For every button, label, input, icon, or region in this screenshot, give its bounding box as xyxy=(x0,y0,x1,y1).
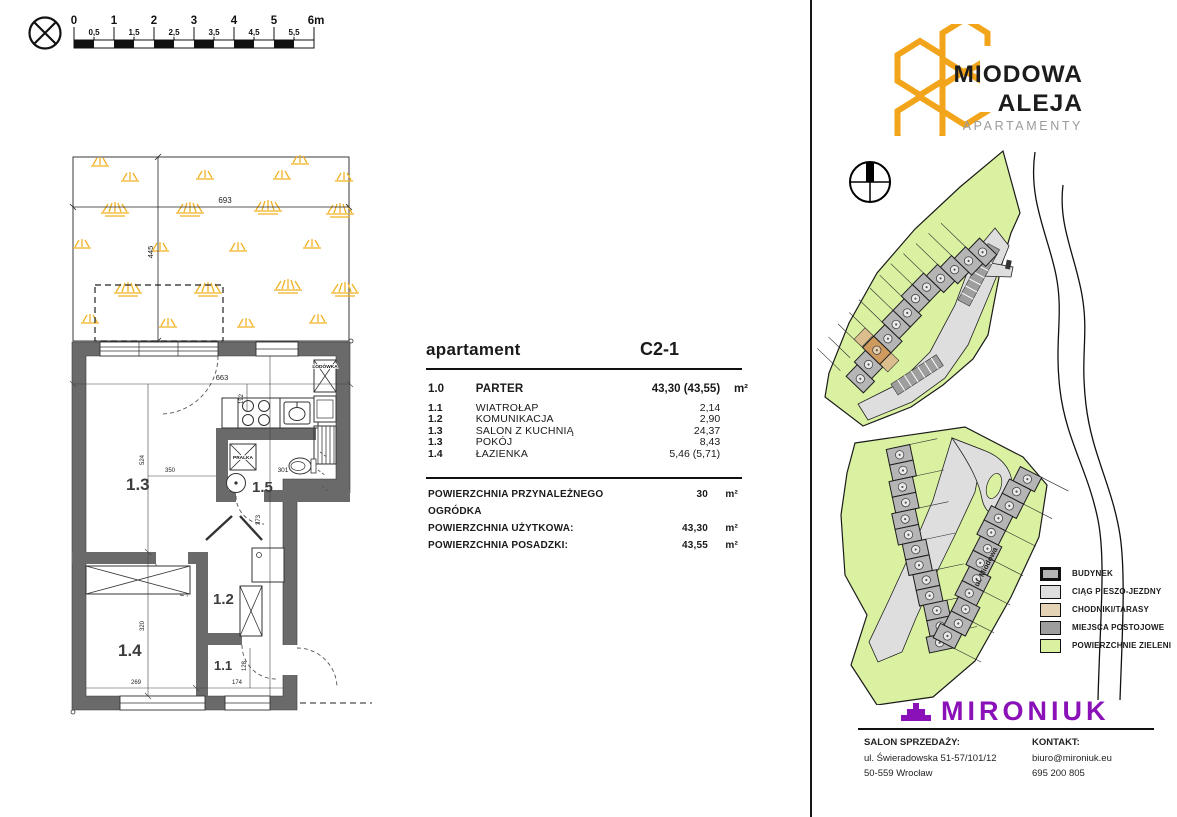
table-row: 1.4 ŁAZIENKA 5,46 (5,71) xyxy=(428,449,748,461)
site-legend: BUDYNEK CIĄG PIESZO-JEZDNY CHODNIKI/TARA… xyxy=(1040,566,1171,653)
table-rule-bottom xyxy=(426,477,742,479)
brand-line2: ALEJA xyxy=(998,90,1083,117)
summary-rows: POWIERZCHNIA PRZYNALEŻNEGO OGRÓDKA 30 m²… xyxy=(428,486,748,554)
lower-parcel: ul. Miodowa xyxy=(841,427,1068,705)
scale-bar: 0 1 2 3 4 5 6m 0,5 1,5 2,5 3,5 4,5 5,5 xyxy=(58,10,338,60)
sales-office-block: SALON SPRZEDAŻY: ul. Świeradowska 51-57/… xyxy=(864,735,997,782)
svg-text:3,5: 3,5 xyxy=(208,28,220,37)
row-unit xyxy=(720,403,748,415)
floor-plan: 693 445 xyxy=(55,140,375,726)
summary-value: 30 xyxy=(656,486,708,520)
row-value: 8,43 xyxy=(643,437,721,449)
row-unit xyxy=(720,414,748,426)
summary-row: POWIERZCHNIA UŻYTKOWA: 43,30 m² xyxy=(428,520,748,537)
table-title: apartament xyxy=(426,340,521,360)
panel-divider xyxy=(810,0,812,817)
svg-text:2: 2 xyxy=(151,15,157,27)
dim-living-height: 524 xyxy=(140,454,146,465)
summary-label: POWIERZCHNIA PRZYNALEŻNEGO OGRÓDKA xyxy=(428,486,656,520)
room-living: 1.3 xyxy=(126,475,150,494)
legend-item: CHODNIKI/TARASY xyxy=(1040,602,1171,617)
dim-garden-width: 693 xyxy=(218,196,232,205)
svg-text:3: 3 xyxy=(191,15,197,27)
legend-item: CIĄG PIESZO-JEZDNY xyxy=(1040,584,1171,599)
upper-parcel xyxy=(815,151,1020,426)
svg-text:2,5: 2,5 xyxy=(168,28,180,37)
row-value: 2,90 xyxy=(643,414,721,426)
dim-kitchen: 192 xyxy=(239,393,245,404)
legend-item: BUDYNEK xyxy=(1040,566,1171,581)
north-indicator-icon xyxy=(850,162,890,202)
washer-label: PRALKA xyxy=(233,455,254,461)
brand-line3: APARTAMENTY xyxy=(963,119,1083,133)
summary-unit: m² xyxy=(708,520,738,537)
dim-bedroom-width: 269 xyxy=(131,680,142,686)
apartment-code: C2-1 xyxy=(640,339,679,360)
room-bath: 1.5 xyxy=(252,479,273,496)
legend-label: CHODNIKI/TARASY xyxy=(1072,605,1149,614)
row-value: 43,30 (43,55) xyxy=(643,384,721,396)
dim-living-width: 350 xyxy=(165,468,176,474)
svg-text:6m: 6m xyxy=(308,15,325,27)
svg-text:1: 1 xyxy=(111,15,118,27)
dim-bath-width: 301 xyxy=(278,467,289,474)
svg-text:4: 4 xyxy=(231,15,238,27)
row-name: POKÓJ xyxy=(476,437,643,449)
legend-item: MIEJSCA POSTOJOWE xyxy=(1040,620,1171,635)
row-code: 1.2 xyxy=(428,414,476,426)
summary-row: POWIERZCHNIA PRZYNALEŻNEGO OGRÓDKA 30 m² xyxy=(428,486,748,520)
contact-title: KONTAKT: xyxy=(1032,735,1112,751)
sales-address-line1: ul. Świeradowska 51-57/101/12 xyxy=(864,751,997,767)
mironiuk-icon xyxy=(898,699,934,723)
row-code: 1.3 xyxy=(428,437,476,449)
scale-bar-segments xyxy=(74,40,314,48)
row-code: 1.0 xyxy=(428,384,476,396)
sales-title: SALON SPRZEDAŻY: xyxy=(864,735,997,751)
scale-ticks xyxy=(74,27,314,40)
brand-logo: MIODOWA ALEJA APARTAMENTY xyxy=(868,24,1108,136)
svg-text:0,5: 0,5 xyxy=(88,28,100,37)
legend-swatch-postojowe xyxy=(1040,621,1061,635)
apartment-walls xyxy=(72,342,350,710)
legend-swatch-ciag xyxy=(1040,585,1061,599)
dim-hall-height: 373 xyxy=(256,514,262,525)
summary-unit: m² xyxy=(708,486,738,520)
dim-entry-height: 128 xyxy=(242,660,248,671)
row-unit xyxy=(720,426,748,438)
summary-value: 43,55 xyxy=(656,537,708,554)
contact-block: KONTAKT: biuro@mironiuk.eu 695 200 805 xyxy=(1032,735,1112,782)
contact-phone: 695 200 805 xyxy=(1032,766,1112,782)
svg-text:0: 0 xyxy=(71,15,77,27)
brochure-page: 0 1 2 3 4 5 6m 0,5 1,5 2,5 3,5 4,5 5,5 xyxy=(0,0,1177,817)
row-name: ŁAZIENKA xyxy=(476,449,643,461)
summary-unit: m² xyxy=(708,537,738,554)
room-entry: 1.1 xyxy=(214,658,232,673)
legend-swatch-budynek xyxy=(1040,567,1061,581)
dim-entry-width: 174 xyxy=(232,680,243,686)
dim-bedroom-height: 320 xyxy=(140,620,146,631)
row-unit xyxy=(720,449,748,461)
apartment-rows: 1.0 PARTER 43,30 (43,55) m² 1.1 WIATROŁA… xyxy=(428,384,748,460)
legend-label: BUDYNEK xyxy=(1072,569,1113,578)
legend-item: POWIERZCHNIE ZIELENI xyxy=(1040,638,1171,653)
brand-line1: MIODOWA xyxy=(954,61,1084,88)
row-value: 5,46 (5,71) xyxy=(643,449,721,461)
room-hall: 1.2 xyxy=(213,591,234,608)
room-bedroom: 1.4 xyxy=(118,641,142,660)
scale-major-labels: 0 1 2 3 4 5 6m xyxy=(71,15,325,27)
legend-swatch-chodniki xyxy=(1040,603,1061,617)
dim-garden-height: 445 xyxy=(146,246,155,259)
table-rule-top xyxy=(426,368,742,370)
summary-value: 43,30 xyxy=(656,520,708,537)
footer-rule xyxy=(858,728,1154,730)
contact-email: biuro@mironiuk.eu xyxy=(1032,751,1112,767)
hall-door-leaves xyxy=(206,516,262,540)
dim-interior-width: 663 xyxy=(216,373,229,382)
legend-label: POWIERZCHNIE ZIELENI xyxy=(1072,641,1171,650)
row-unit xyxy=(720,437,748,449)
summary-label: POWIERZCHNIA UŻYTKOWA: xyxy=(428,520,656,537)
table-row: 1.2 KOMUNIKACJA 2,90 xyxy=(428,414,748,426)
row-name: PARTER xyxy=(476,384,643,396)
svg-text:5,5: 5,5 xyxy=(288,28,300,37)
summary-label: POWIERZCHNIA POSADZKI: xyxy=(428,537,656,554)
table-row: 1.3 POKÓJ 8,43 xyxy=(428,437,748,449)
legend-swatch-zielen xyxy=(1040,639,1061,653)
sales-address-line2: 50-559 Wrocław xyxy=(864,766,997,782)
kitchen-tall-units: LODÓWKA xyxy=(312,360,338,464)
svg-text:1,5: 1,5 xyxy=(128,28,140,37)
svg-text:5: 5 xyxy=(271,15,278,27)
row-unit: m² xyxy=(720,384,748,396)
svg-text:4,5: 4,5 xyxy=(248,28,260,37)
row-name: KOMUNIKACJA xyxy=(476,414,643,426)
row-code: 1.4 xyxy=(428,449,476,461)
table-row: 1.0 PARTER 43,30 (43,55) m² xyxy=(428,384,748,396)
legend-label: MIEJSCA POSTOJOWE xyxy=(1072,623,1164,632)
summary-row: POWIERZCHNIA POSADZKI: 43,55 m² xyxy=(428,537,748,554)
legend-label: CIĄG PIESZO-JEZDNY xyxy=(1072,587,1161,596)
developer-name: MIRONIUK xyxy=(941,696,1110,727)
